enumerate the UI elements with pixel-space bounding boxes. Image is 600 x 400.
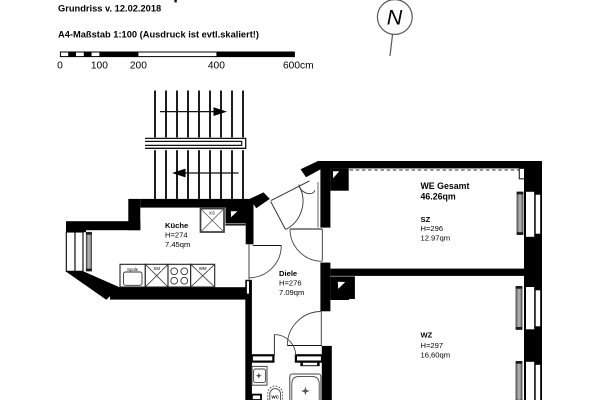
svg-text:KS: KS xyxy=(209,210,215,215)
svg-text:A4-Maßstab 1:100 (Ausdruck ist: A4-Maßstab 1:100 (Ausdruck ist evtl.skal… xyxy=(58,30,259,40)
svg-text:N: N xyxy=(387,5,403,29)
svg-text:WZ: WZ xyxy=(421,330,433,339)
svg-text:H=276: H=276 xyxy=(279,279,302,288)
svg-text:200: 200 xyxy=(130,61,147,72)
svg-text:600cm: 600cm xyxy=(283,61,314,72)
svg-text:400: 400 xyxy=(208,61,225,72)
svg-text:46.26qm: 46.26qm xyxy=(421,191,456,201)
svg-text:0: 0 xyxy=(57,61,63,72)
svg-text:H=296: H=296 xyxy=(421,224,444,233)
svg-text:WM: WM xyxy=(199,266,207,271)
svg-text:SM: SM xyxy=(153,266,160,271)
svg-text:Grundriss v. 12.02.2018: Grundriss v. 12.02.2018 xyxy=(58,3,161,13)
svg-text:SZ: SZ xyxy=(421,215,431,224)
svg-text:12.97qm: 12.97qm xyxy=(421,234,451,243)
svg-text:H=274: H=274 xyxy=(165,231,188,240)
svg-text:7.45qm: 7.45qm xyxy=(165,240,190,249)
svg-text:Diele: Diele xyxy=(279,269,297,278)
svg-text:WC: WC xyxy=(271,395,279,400)
svg-text:Küche: Küche xyxy=(165,221,188,230)
svg-text:WE Gesamt: WE Gesamt xyxy=(421,181,470,191)
svg-text:100: 100 xyxy=(91,61,108,72)
svg-text:16,60qm: 16,60qm xyxy=(421,350,451,359)
svg-text:H=297: H=297 xyxy=(421,341,444,350)
svg-text:7.09qm: 7.09qm xyxy=(279,288,304,297)
svg-text:Spüle: Spüle xyxy=(127,267,139,272)
